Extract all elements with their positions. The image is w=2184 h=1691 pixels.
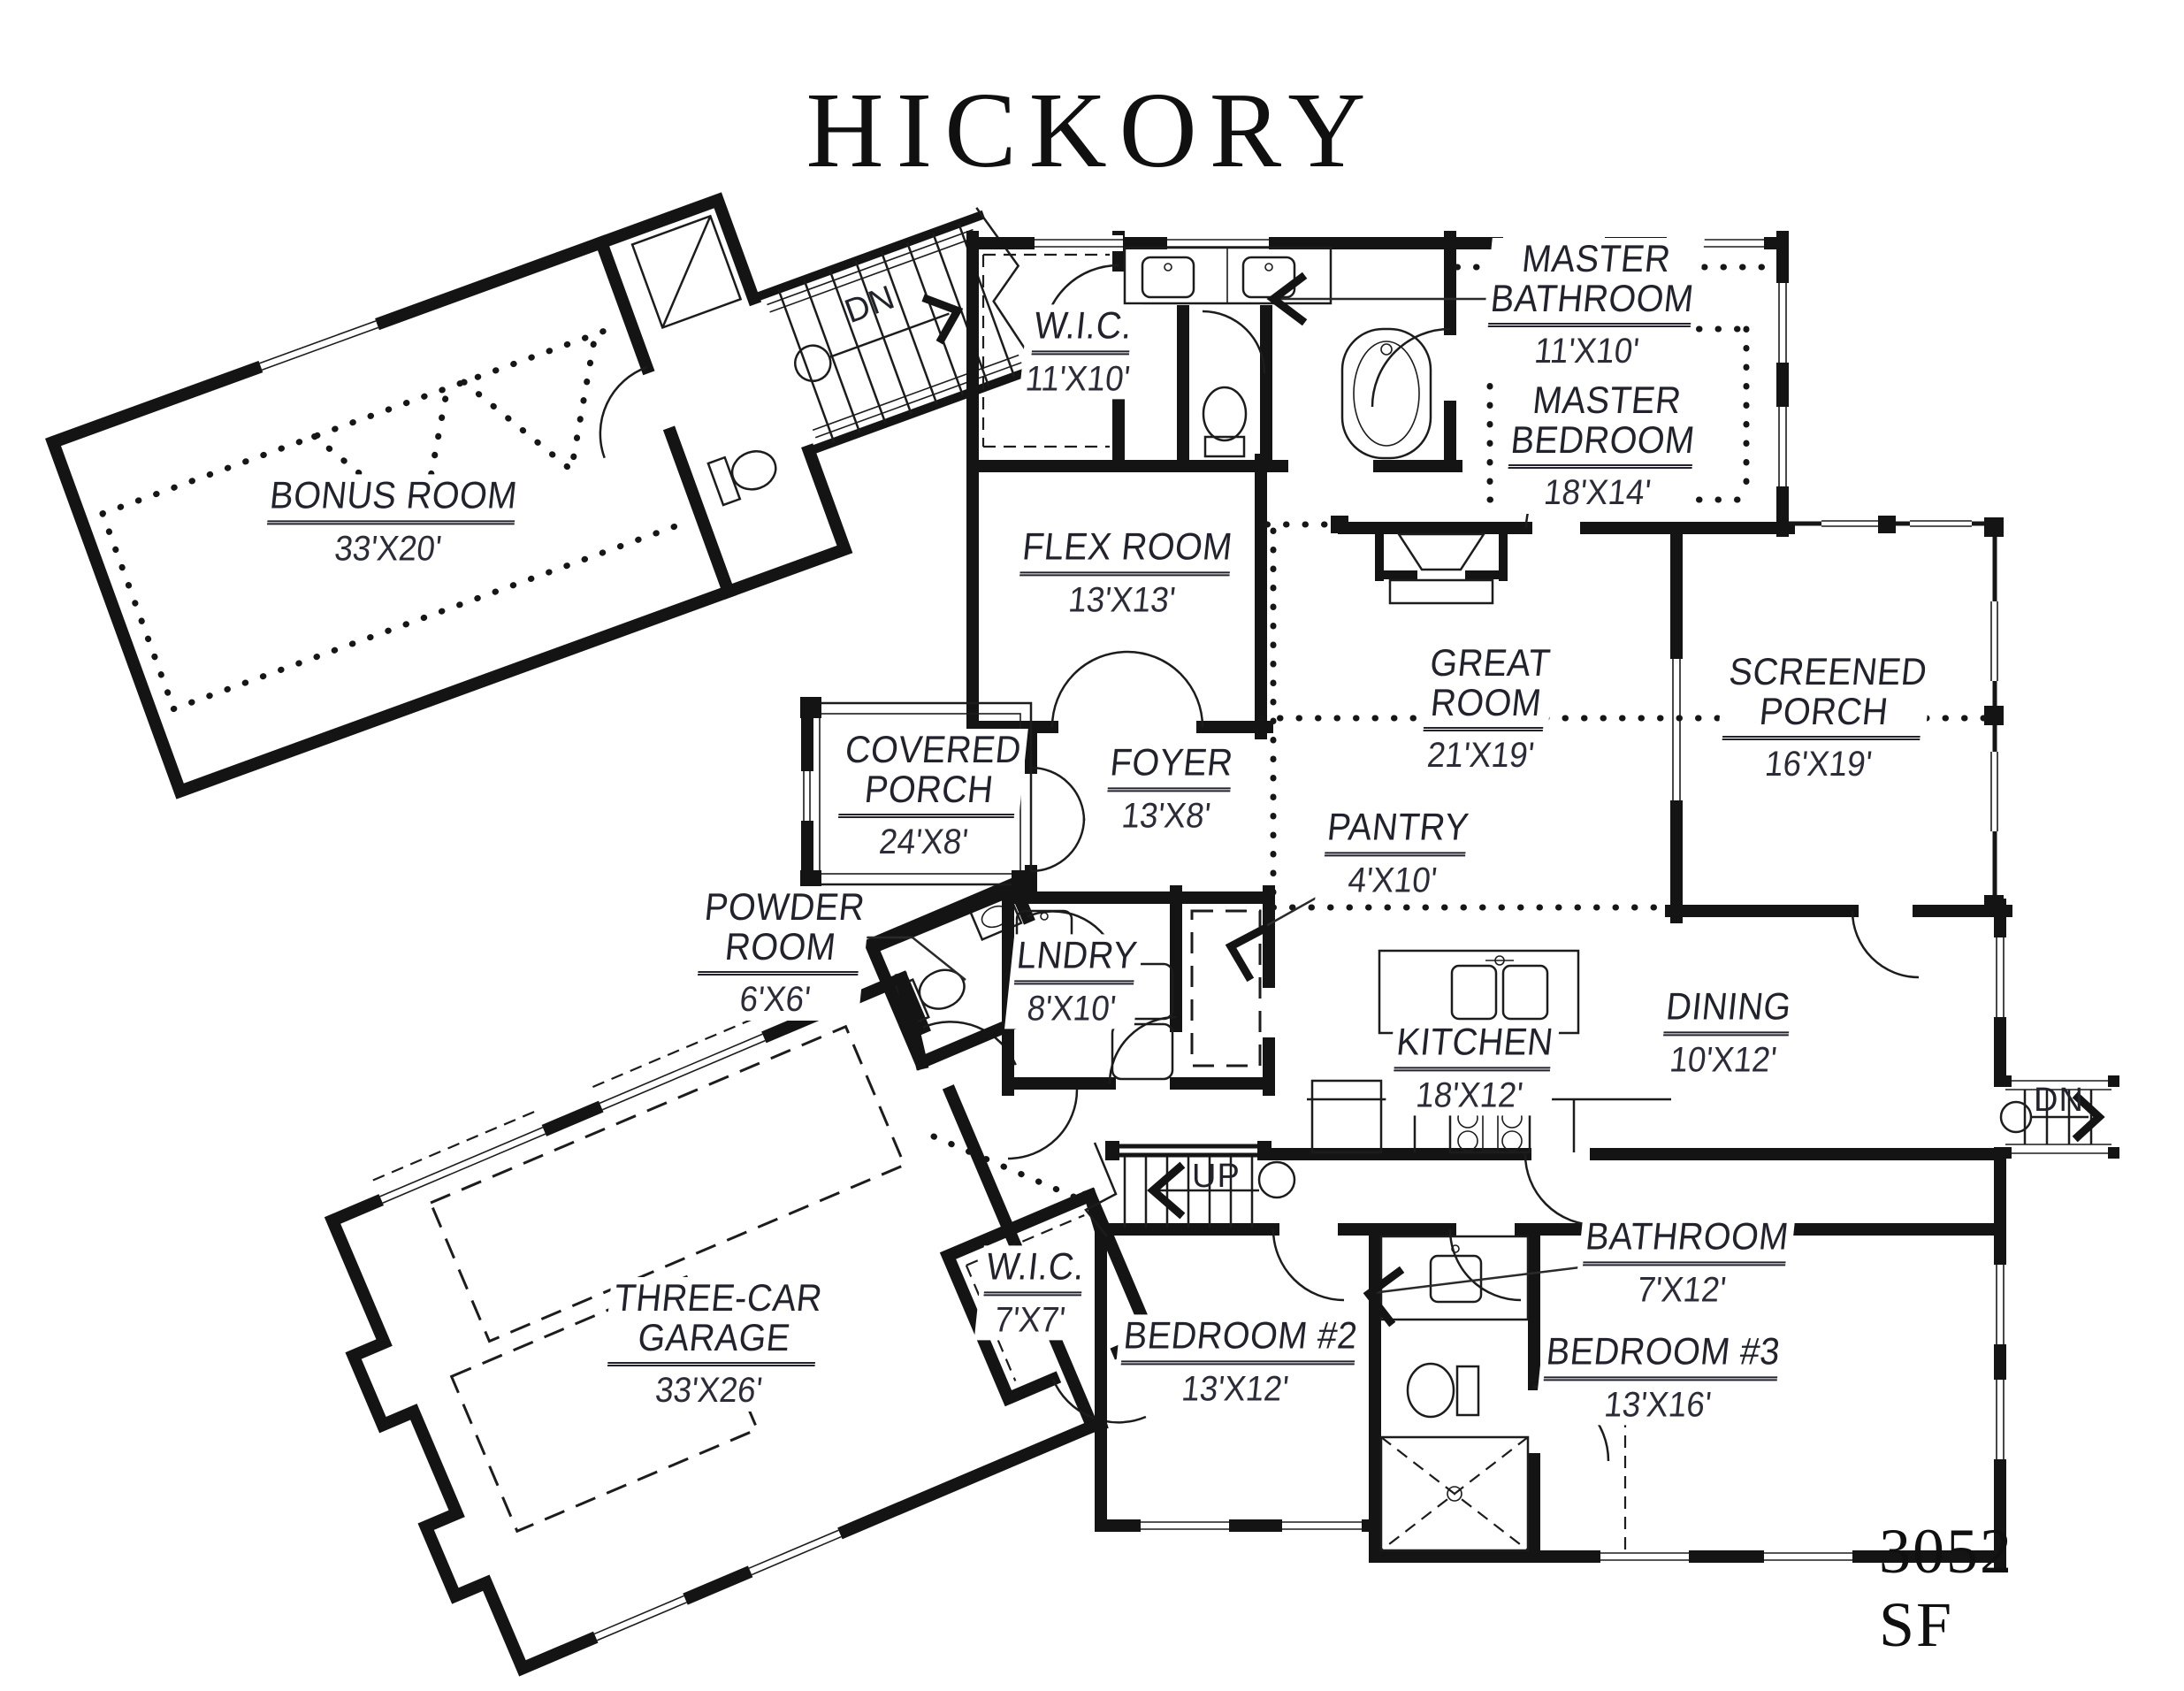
- room-label-covered: COVEREDPORCH 24'X8': [829, 729, 1028, 863]
- master-toilet: [1203, 387, 1246, 440]
- bonus-wing: DN: [50, 104, 1088, 791]
- room-label-dining: DINING 10'X12': [1653, 985, 1798, 1080]
- fridge: [1312, 1081, 1381, 1152]
- room-label-master-bed: MASTERBEDROOM 18'X14': [1499, 379, 1707, 514]
- dryer: [1112, 1024, 1172, 1079]
- room-label-foyer: FOYER 13'X8': [1098, 741, 1241, 836]
- floor-plan-drawing: DN: [0, 0, 2184, 1691]
- room-label-wic-master: W.I.C. 11'X10': [1019, 304, 1142, 399]
- room-label-wic2: W.I.C. 7'X7': [974, 1245, 1092, 1340]
- room-label-flex: FLEX ROOM 13'X13': [1010, 525, 1239, 620]
- island-sink-right: [1503, 966, 1547, 1019]
- bath2-sink: [1431, 1256, 1481, 1302]
- plan-title: HICKORY: [806, 69, 1378, 193]
- stairs-up: UP: [1086, 1141, 1294, 1236]
- master-tub: [1342, 329, 1431, 458]
- room-label-kitchen: KITCHEN 18'X12': [1384, 1021, 1560, 1115]
- stairs-deck-dn: DN: [2000, 1075, 2119, 1159]
- room-label-bed2: BEDROOM #2 13'X12': [1111, 1314, 1364, 1409]
- stairs-up-label: UP: [1192, 1158, 1241, 1195]
- bonus-bath: [539, 216, 805, 538]
- fireplace: [1379, 528, 1503, 603]
- floor-plan-page: DN: [0, 0, 2184, 1691]
- bath2-toilet: [1408, 1364, 1454, 1417]
- total-area-label: 3052 SF: [1879, 1515, 2082, 1662]
- bonus-bath-door-arc: [580, 367, 671, 458]
- powder-toilet: [913, 963, 970, 1015]
- room-label-bed3: BEDROOM #3 13'X16': [1534, 1330, 1787, 1425]
- room-label-bath2: BATHROOM 7'X12': [1573, 1215, 1796, 1310]
- stairs-deck-label: DN: [2034, 1082, 2084, 1119]
- stairs-dn-label: DN: [840, 279, 900, 331]
- room-label-laundry: LNDRY 8'X10': [1004, 934, 1144, 1029]
- island-sink-left: [1452, 966, 1496, 1019]
- room-label-powder: POWDERROOM 6'X6': [688, 886, 872, 1021]
- room-label-garage: THREE-CARGARAGE 33'X26': [598, 1277, 829, 1412]
- room-label-great: GREATROOM 21'X19': [1414, 642, 1558, 777]
- room-label-screened: SCREENEDPORCH 16'X19': [1713, 651, 1935, 785]
- hall-threshold-dots: [934, 1136, 1092, 1205]
- room-label-master-bath: MASTERBATHROOM 11'X10': [1478, 238, 1705, 372]
- room-label-bonus: BONUS ROOM 33'X20': [257, 474, 524, 569]
- room-label-pantry: PANTRY 4'X10': [1315, 806, 1476, 900]
